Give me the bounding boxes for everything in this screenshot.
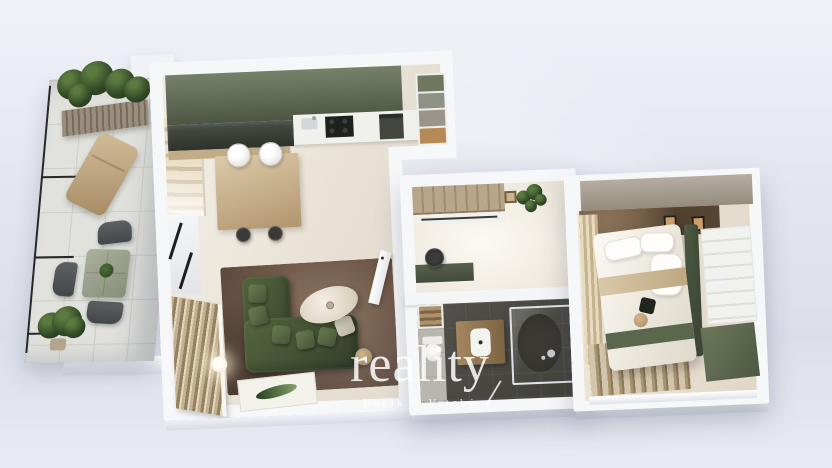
railing-bar <box>34 256 74 259</box>
shelf-cell <box>417 75 444 92</box>
burner-icon <box>329 119 334 124</box>
burner-icon <box>330 128 335 133</box>
plant-icon <box>67 83 93 107</box>
plant-icon <box>123 76 151 103</box>
window-frame-bar <box>179 252 193 289</box>
faucet-icon <box>312 116 316 120</box>
tall-shelf-unit <box>415 73 448 146</box>
shelf-cell <box>418 92 445 109</box>
outdoor-chair <box>85 301 124 325</box>
plant-icon <box>525 200 537 212</box>
table-plant-icon <box>99 263 115 277</box>
plant-pot <box>49 338 66 350</box>
shelf-cell <box>419 110 446 127</box>
desk <box>415 263 474 283</box>
room-bedroom <box>564 168 770 412</box>
scene-background: reality Horák & Vetchý / <box>0 0 832 468</box>
double-bed <box>592 223 697 371</box>
sun-lounger <box>63 131 141 218</box>
hallway-wardrobe <box>412 183 505 215</box>
kitchen-counter <box>293 110 420 145</box>
brand-text: reality <box>255 342 585 389</box>
window-frame-bar <box>168 223 182 260</box>
built-in-appliance <box>379 113 404 139</box>
potted-plant <box>35 312 87 357</box>
wall-frame <box>504 191 516 203</box>
outdoor-chair <box>51 261 78 296</box>
burner-icon <box>342 119 347 124</box>
watermark-logo: reality Horák & Vetchý / <box>255 342 585 411</box>
dining-island <box>215 153 302 230</box>
dark-cushion <box>638 297 656 315</box>
pillow <box>640 232 674 253</box>
cooktop <box>325 116 354 138</box>
round-cushion <box>633 312 649 328</box>
shelf-cell <box>420 127 447 144</box>
pillow <box>603 235 644 263</box>
lounger-fold <box>91 154 125 172</box>
wall-plant <box>516 183 551 220</box>
brand-subtitle-row: Horák & Vetchý / <box>363 393 477 411</box>
sofa-cushion <box>248 284 266 302</box>
door-handle-icon <box>381 256 385 260</box>
green-runner <box>605 323 694 350</box>
brand-subtitle: Horák & Vetchý <box>363 397 477 409</box>
bench-line <box>421 216 497 221</box>
burner-icon <box>342 128 347 133</box>
towel-niche <box>417 304 444 329</box>
olive-wall <box>700 322 760 382</box>
sofa-cushion <box>248 305 269 326</box>
panel-wardrobe <box>700 225 757 325</box>
outdoor-chair <box>98 219 132 245</box>
outdoor-table <box>81 249 131 298</box>
plant-icon <box>62 316 86 338</box>
table-decor <box>325 300 335 310</box>
sink <box>301 118 317 130</box>
window <box>168 213 201 294</box>
